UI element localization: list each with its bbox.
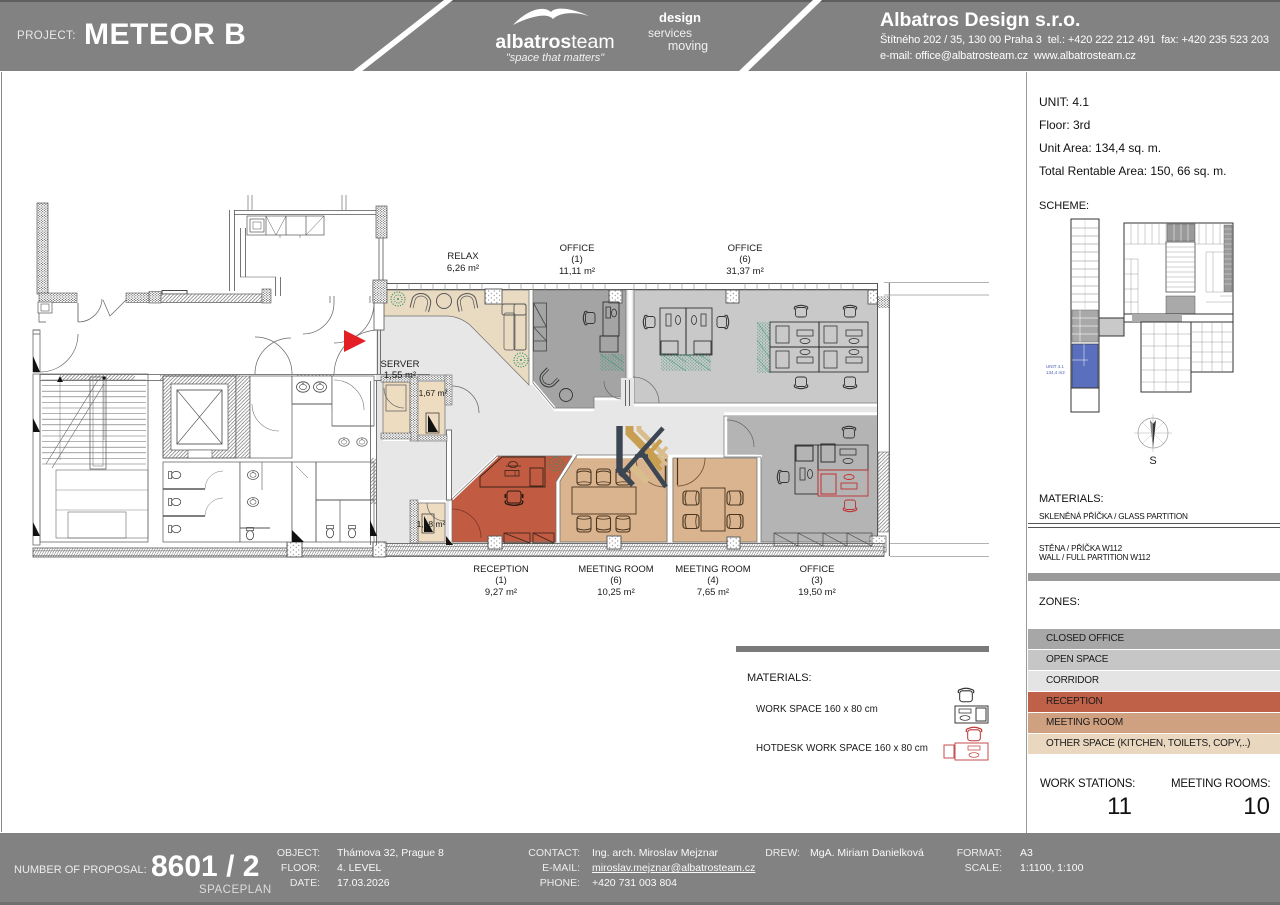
svg-text:OFFICE: OFFICE <box>800 564 835 575</box>
svg-text:HOTDESK WORK SPACE 160 x 80 cm: HOTDESK WORK SPACE 160 x 80 cm <box>756 743 928 754</box>
svg-text:1,55 m²: 1,55 m² <box>384 370 416 381</box>
svg-text:134,4 m2: 134,4 m2 <box>1046 370 1065 375</box>
svg-text:7,65 m²: 7,65 m² <box>697 587 729 598</box>
svg-text:1,18 m²: 1,18 m² <box>417 519 446 529</box>
svg-text:S: S <box>1149 455 1156 467</box>
svg-text:OFFICE: OFFICE <box>728 243 763 254</box>
svg-text:OFFICE: OFFICE <box>560 243 595 254</box>
svg-text:MEETING ROOM: MEETING ROOM <box>578 564 654 575</box>
svg-text:6,26 m²: 6,26 m² <box>447 263 479 274</box>
svg-text:RECEPTION: RECEPTION <box>473 564 529 575</box>
svg-text:31,37 m²: 31,37 m² <box>726 266 764 277</box>
svg-text:9,27 m²: 9,27 m² <box>485 587 517 598</box>
svg-text:1,67 m²: 1,67 m² <box>419 388 448 398</box>
svg-text:10,25 m²: 10,25 m² <box>597 587 635 598</box>
svg-text:WORK SPACE 160 x 80 cm: WORK SPACE 160 x 80 cm <box>756 704 878 715</box>
svg-text:(6): (6) <box>610 575 622 586</box>
svg-text:RELAX: RELAX <box>447 251 479 262</box>
svg-text:MEETING ROOM: MEETING ROOM <box>675 564 751 575</box>
svg-text:(1): (1) <box>571 254 583 265</box>
svg-text:UNIT 4.1: UNIT 4.1 <box>1046 364 1064 369</box>
svg-text:(6): (6) <box>739 254 751 265</box>
svg-text:SERVER: SERVER <box>381 359 420 370</box>
svg-text:19,50 m²: 19,50 m² <box>798 587 836 598</box>
svg-text:(3): (3) <box>811 575 823 586</box>
svg-text:11,11 m²: 11,11 m² <box>559 266 595 277</box>
svg-text:(4): (4) <box>707 575 719 586</box>
svg-text:MATERIALS:: MATERIALS: <box>747 672 812 684</box>
svg-text:(1): (1) <box>495 575 507 586</box>
